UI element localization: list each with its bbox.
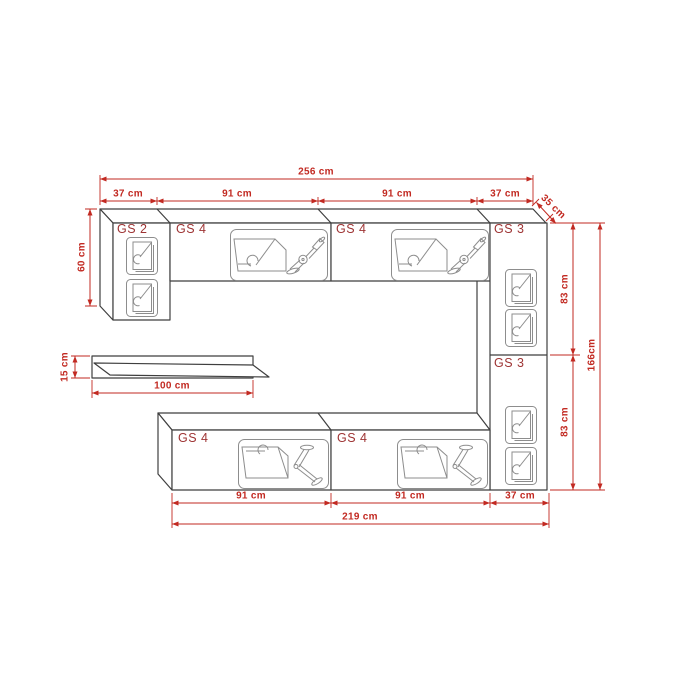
cabinet-label-gs4-bottom-left: GS 4 [178, 431, 209, 445]
dim-shelf-height: 15 cm [60, 352, 71, 382]
dim-left-cabinet-height: 60 cm [77, 242, 88, 272]
dim-total-width-top: 256 cm [298, 167, 334, 178]
dim-shelf-width: 100 cm [154, 381, 190, 392]
top-row-cabinets [100, 209, 546, 320]
cabinet-label-gs4-bottom-right: GS 4 [337, 431, 368, 445]
dim-top-segment-4: 37 cm [490, 189, 520, 200]
cabinet-label-gs3-top-right: GS 3 [494, 222, 525, 236]
dim-total-height: 166cm [587, 339, 598, 372]
dim-total-width-bottom: 219 cm [342, 512, 378, 523]
cabinet-outlines [92, 209, 547, 490]
dim-right-upper-height: 83 cm [560, 274, 571, 304]
cabinet-label-gs2-top-left: GS 2 [117, 222, 148, 236]
cabinet-label-gs4-top-mid-left: GS 4 [176, 222, 207, 236]
cabinet-label-gs3-right-lower: GS 3 [494, 356, 525, 370]
dim-right-lower-height: 83 cm [560, 407, 571, 437]
dim-top-segment-3: 91 cm [382, 189, 412, 200]
dim-bottom-segment-2: 91 cm [395, 491, 425, 502]
dim-top-segment-1: 37 cm [113, 189, 143, 200]
wall-shelf [92, 356, 269, 378]
diagram-canvas: 256 cm 37 cm 91 cm 91 cm 37 cm 35 cm 60 … [0, 0, 700, 700]
dim-top-segment-2: 91 cm [222, 189, 252, 200]
cabinet-label-gs4-top-mid-right: GS 4 [336, 222, 367, 236]
dim-bottom-segment-3: 37 cm [505, 491, 535, 502]
dim-bottom-segment-1: 91 cm [236, 491, 266, 502]
